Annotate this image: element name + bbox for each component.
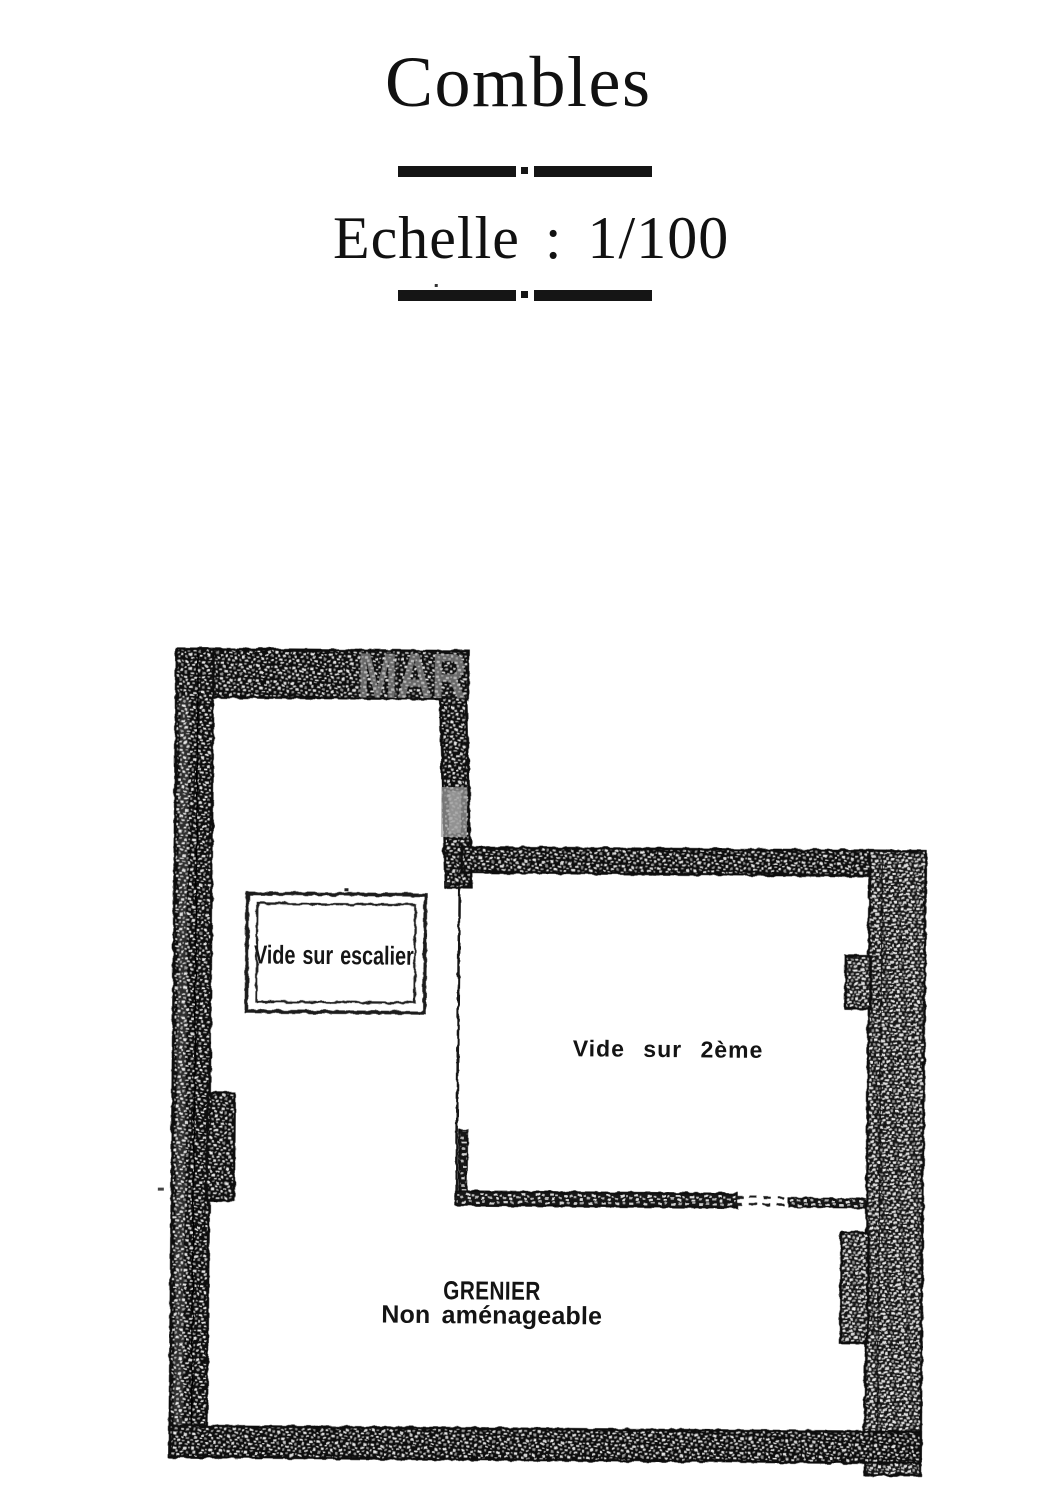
svg-text:Non aménageable: Non aménageable: [381, 1301, 602, 1331]
svg-text:Vide sur escalier: Vide sur escalier: [254, 940, 414, 971]
svg-text:Vide sur 2ème: Vide sur 2ème: [573, 1035, 764, 1063]
